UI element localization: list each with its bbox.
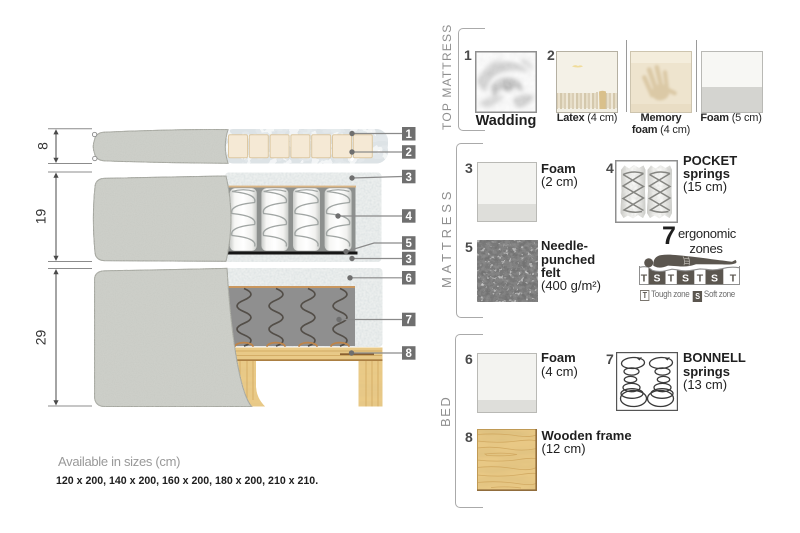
svg-text:6: 6 [405,273,411,285]
svg-text:8: 8 [405,348,412,360]
svg-text:2: 2 [405,147,411,159]
svg-text:8: 8 [35,142,51,150]
svg-text:3: 3 [405,254,411,266]
svg-text:S: S [682,273,689,285]
svg-text:29: 29 [33,330,49,346]
svg-text:7: 7 [405,315,411,327]
svg-text:4: 4 [405,211,412,223]
svg-text:S: S [653,273,660,285]
svg-text:19: 19 [33,209,49,225]
svg-text:T: T [668,273,675,285]
svg-text:T: T [641,273,648,285]
svg-text:T: T [730,273,737,285]
svg-text:3: 3 [405,172,411,184]
svg-text:5: 5 [405,238,412,250]
svg-text:T: T [697,273,704,285]
svg-text:1: 1 [405,129,412,141]
svg-text:S: S [711,273,718,285]
